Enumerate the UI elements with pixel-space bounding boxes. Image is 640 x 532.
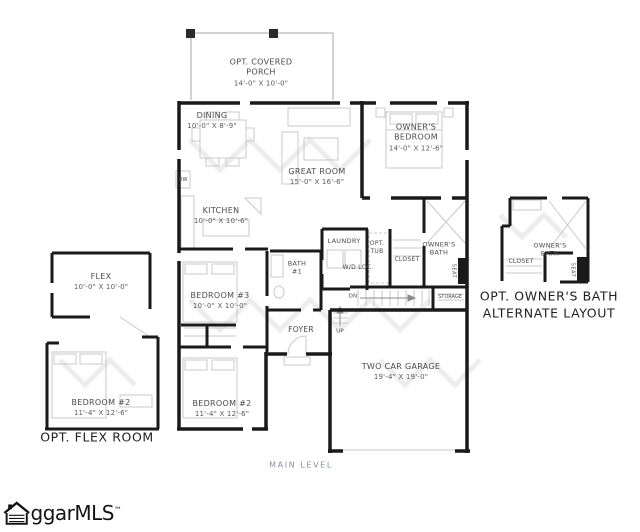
label-storage: STORAGE bbox=[438, 294, 462, 301]
label-great-room: GREAT ROOM 15'-0" X 16'-6" bbox=[288, 167, 345, 187]
bedroom2-flex-name: BEDROOM #2 bbox=[71, 398, 130, 408]
label-alt-owners-bath: OWNER'S BATH bbox=[525, 242, 575, 259]
caption-alt-bath-line2: ALTERNATE LAYOUT bbox=[483, 306, 615, 321]
label-bedroom2-main: BEDROOM #2 11'-4" X 12'-6" bbox=[192, 399, 251, 419]
label-owners-closet: CLOSET bbox=[394, 256, 419, 264]
great-room-name: GREAT ROOM bbox=[288, 167, 345, 177]
caption-alt-bath-line1: OPT. OWNER'S BATH bbox=[480, 289, 618, 304]
bedroom3-name: BEDROOM #3 bbox=[190, 291, 249, 301]
porch-dims: 14'-0" X 10'-0" bbox=[215, 79, 307, 88]
label-garage: TWO CAR GARAGE 19'-4" X 19'-0" bbox=[362, 362, 441, 382]
mls-logo-text: ggarMLS™ bbox=[31, 501, 122, 525]
label-kitchen: KITCHEN 10'-0" X 10'-6" bbox=[194, 206, 248, 226]
label-owners-bedroom: OWNER'S BEDROOM 14'-0" X 12'-6" bbox=[384, 123, 448, 154]
label-bedroom3: BEDROOM #3 10'-0" X 10'-0" bbox=[190, 291, 249, 311]
label-wd-loc: W/D LOC. bbox=[328, 264, 388, 272]
label-laundry: LAUNDRY bbox=[327, 237, 360, 245]
mls-tm: ™ bbox=[114, 505, 122, 514]
bedroom3-dims: 10'-0" X 10'-0" bbox=[190, 302, 249, 311]
caption-opt-flex-room: OPT. FLEX ROOM bbox=[40, 430, 154, 445]
floorplan-drawing bbox=[0, 0, 640, 532]
flex-name: FLEX bbox=[74, 272, 128, 282]
dining-name: DINING bbox=[187, 111, 237, 121]
flex-dims: 10'-0" X 10'-0" bbox=[74, 283, 128, 292]
kitchen-name: KITCHEN bbox=[194, 206, 248, 216]
label-bath1: BATH #1 bbox=[282, 260, 312, 277]
label-porch: OPT. COVERED PORCH 14'-0" X 10'-0" bbox=[215, 58, 307, 89]
owners-bedroom-dims: 14'-0" X 12'-6" bbox=[384, 144, 448, 153]
label-flex: FLEX 10'-0" X 10'-0" bbox=[74, 272, 128, 292]
great-room-dims: 15'-0" X 16'-6" bbox=[288, 178, 345, 187]
bedroom2-main-name: BEDROOM #2 bbox=[192, 399, 251, 409]
dining-dims: 10'-0" X 8'-9" bbox=[187, 122, 237, 131]
label-owners-bath: OWNER'S BATH bbox=[417, 241, 461, 258]
label-foyer: FOYER bbox=[288, 325, 314, 335]
bedroom2-flex-dims: 11'-4" X 12'-6" bbox=[71, 409, 130, 418]
label-stairs-dn: DN bbox=[349, 293, 358, 300]
label-dw: DW bbox=[179, 177, 188, 184]
label-opt-tub: OPT. TUB bbox=[365, 240, 389, 256]
label-dining: DINING 10'-0" X 8'-9" bbox=[187, 111, 237, 131]
level-label: MAIN LEVEL bbox=[269, 461, 333, 470]
mls-brand: ggarMLS bbox=[31, 501, 114, 525]
furniture-layer bbox=[52, 108, 586, 450]
label-alt-seat: SEAT bbox=[569, 263, 576, 277]
label-bedroom2-flex: BEDROOM #2 11'-4" X 12'-6" bbox=[71, 398, 130, 418]
label-alt-closet: CLOSET bbox=[508, 258, 533, 266]
mls-logo: ggarMLS™ bbox=[2, 496, 122, 530]
floorplan-page: OPT. COVERED PORCH 14'-0" X 10'-0" DININ… bbox=[0, 0, 640, 532]
label-seat: SEAT bbox=[450, 264, 457, 278]
label-stairs-up: UP bbox=[336, 328, 344, 335]
bedroom2-main-dims: 11'-4" X 12'-6" bbox=[192, 410, 251, 419]
owners-bedroom-name: OWNER'S BEDROOM bbox=[384, 123, 448, 144]
kitchen-dims: 10'-0" X 10'-6" bbox=[194, 217, 248, 226]
garage-name: TWO CAR GARAGE bbox=[362, 362, 441, 372]
garage-dims: 19'-4" X 19'-0" bbox=[362, 373, 441, 382]
porch-name: OPT. COVERED PORCH bbox=[215, 58, 307, 79]
